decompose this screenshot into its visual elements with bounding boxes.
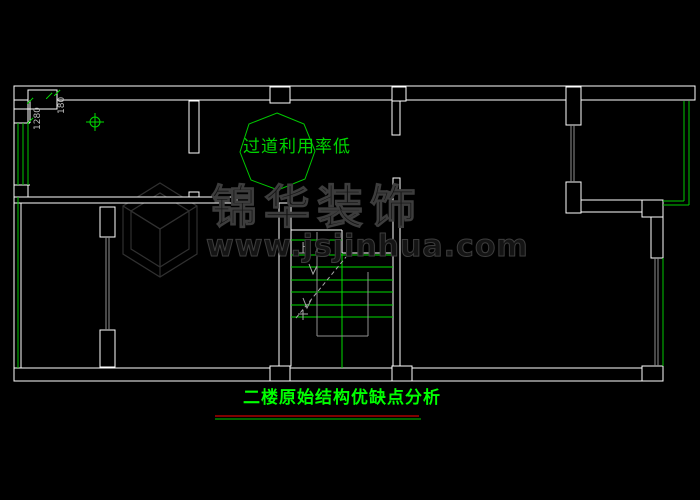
bay-window-right-top [663, 101, 689, 205]
plan-title: 二楼原始结构优缺点分析 [243, 390, 441, 407]
dimension-text-1280: 1280 [34, 107, 43, 130]
right-window-inner [655, 258, 658, 366]
title-underline [215, 416, 421, 419]
stair-direction-arrow [296, 257, 346, 320]
dimension-text-180: 180 [58, 97, 67, 114]
watermark-brand: 锦华装饰 [211, 184, 423, 230]
left-window [18, 123, 28, 185]
watermark-url: www.jsjinhua.com [206, 232, 529, 262]
corridor-annotation: 过道利用率低 [243, 139, 351, 156]
left-partition-door [106, 237, 109, 330]
cad-viewport[interactable]: 过道利用率低 上 1280 180 锦华装饰 www.jsjinhua.com … [0, 0, 700, 500]
right-stub-window [571, 125, 574, 182]
point-marker-crosshair [86, 113, 104, 131]
